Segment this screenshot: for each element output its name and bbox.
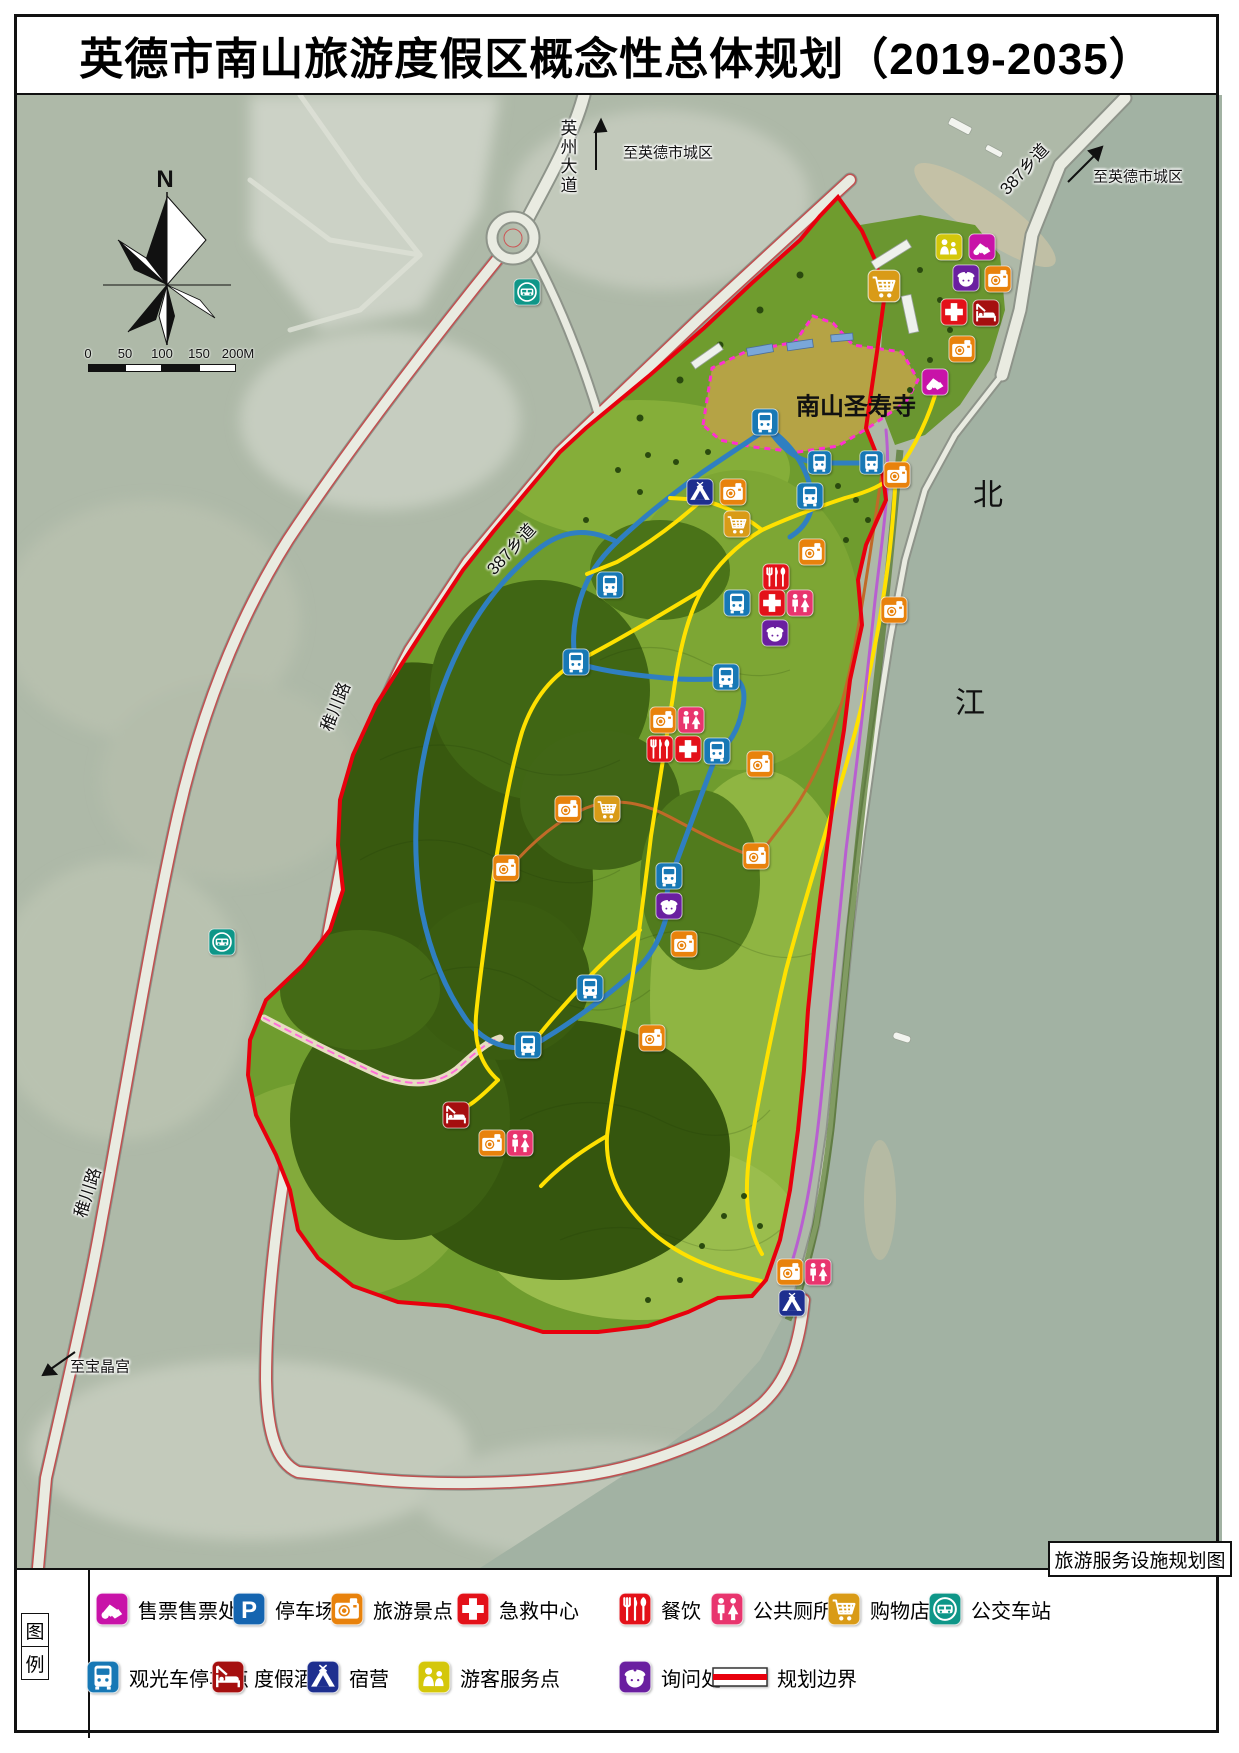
marker-bus-station-icon xyxy=(208,928,236,956)
legend-item-visitor-service: 游客服务点 xyxy=(417,1659,560,1695)
legend-item-attraction: 旅游景点 xyxy=(330,1591,453,1627)
marker-sightseeing-bus-icon xyxy=(703,737,731,765)
marker-attraction-icon xyxy=(478,1129,506,1157)
legend-item-toilet: 公共厕所 xyxy=(710,1591,833,1627)
marker-camping-icon xyxy=(778,1289,806,1317)
title-band: 英德市南山旅游度假区概念性总体规划（2019-2035） xyxy=(17,17,1216,95)
marker-attraction-icon xyxy=(638,1024,666,1052)
scale-segment xyxy=(125,364,162,372)
scale-tick: 150 xyxy=(188,346,210,361)
marker-sightseeing-bus-icon xyxy=(562,648,590,676)
dining-icon xyxy=(618,1592,652,1626)
marker-sightseeing-bus-icon xyxy=(807,450,832,475)
marker-attraction-icon xyxy=(948,335,976,363)
sandbank xyxy=(864,1140,896,1260)
attraction-icon xyxy=(330,1592,364,1626)
marker-shopping-icon xyxy=(593,795,621,823)
map-sheet-title: 旅游服务设施规划图 xyxy=(1048,1541,1232,1577)
legend-label: 宿营 xyxy=(349,1663,389,1692)
legend-item-bus-station: 公交车站 xyxy=(928,1591,1051,1627)
legend-item-boundary: 规划边界 xyxy=(712,1659,857,1695)
legend-label: 公交车站 xyxy=(971,1595,1051,1624)
bus-station-icon xyxy=(928,1592,962,1626)
marker-attraction-icon xyxy=(776,1258,804,1286)
legend-item-first-aid: 急救中心 xyxy=(456,1591,579,1627)
marker-attraction-icon xyxy=(880,596,908,624)
marker-resort-hotel-icon xyxy=(972,299,1000,327)
marker-resort-hotel-icon xyxy=(442,1101,470,1129)
legend-item-information: 询问处 xyxy=(618,1659,721,1695)
marker-attraction-icon xyxy=(492,854,520,882)
marker-sightseeing-bus-icon xyxy=(751,408,779,436)
legend-label: 旅游景点 xyxy=(373,1595,453,1624)
page-title: 英德市南山旅游度假区概念性总体规划（2019-2035） xyxy=(79,23,1153,87)
shopping-icon xyxy=(827,1592,861,1626)
marker-sightseeing-bus-icon xyxy=(859,450,884,475)
legend-label: 规划边界 xyxy=(777,1663,857,1692)
ticket-office-icon xyxy=(95,1592,129,1626)
legend: 图例 售票售票处P停车场旅游景点急救中心餐饮公共厕所购物店公交车站观光车停车点度… xyxy=(17,1568,1222,1736)
marker-sightseeing-bus-icon xyxy=(576,974,604,1002)
roundabout xyxy=(492,217,534,259)
legend-divider xyxy=(88,1570,90,1738)
legend-item-ticket-office: 售票售票处 xyxy=(95,1591,238,1627)
map-label: 南山圣寿寺 xyxy=(796,387,916,422)
marker-dining-icon xyxy=(762,563,790,591)
marker-sightseeing-bus-icon xyxy=(723,589,751,617)
boundary-icon xyxy=(712,1667,768,1687)
marker-sightseeing-bus-icon xyxy=(796,482,824,510)
marker-attraction-icon xyxy=(984,265,1012,293)
marker-first-aid-icon xyxy=(940,298,968,326)
map-label: 英州大道 xyxy=(555,119,580,195)
marker-attraction-icon xyxy=(719,478,747,506)
toilet-icon xyxy=(710,1592,744,1626)
legend-label: 急救中心 xyxy=(499,1595,579,1624)
legend-heading-char: 例 xyxy=(21,1646,49,1680)
map-sheet-title-text: 旅游服务设施规划图 xyxy=(1054,1546,1225,1573)
map-label: 至英德市城区 xyxy=(623,142,713,163)
first-aid-icon xyxy=(456,1592,490,1626)
marker-toilet-icon xyxy=(506,1129,534,1157)
marker-attraction-icon xyxy=(746,750,774,778)
information-icon xyxy=(618,1660,652,1694)
marker-visitor-service-icon xyxy=(935,233,963,261)
marker-ticket-office-icon xyxy=(921,368,949,396)
marker-first-aid-icon xyxy=(674,735,702,763)
map-label: N xyxy=(156,166,173,194)
camping-icon xyxy=(306,1660,340,1694)
marker-attraction-icon xyxy=(670,930,698,958)
legend-label: 公共厕所 xyxy=(753,1595,833,1624)
scale-tick: 0 xyxy=(84,346,91,361)
legend-label: 售票售票处 xyxy=(138,1595,238,1624)
marker-attraction-icon xyxy=(649,706,677,734)
marker-ticket-office-icon xyxy=(968,233,996,261)
marker-sightseeing-bus-icon xyxy=(655,862,683,890)
map-canvas: N英州大道至英德市城区387乡道至英德市城区南山圣寿寺387乡道稚川路北江稚川路… xyxy=(17,95,1222,1568)
scale-tick: 50 xyxy=(118,346,132,361)
resort-hotel-icon xyxy=(211,1660,245,1694)
marker-sightseeing-bus-icon xyxy=(514,1031,542,1059)
marker-shopping-icon xyxy=(723,510,751,538)
svg-text:P: P xyxy=(241,1597,257,1624)
marker-attraction-icon xyxy=(742,842,770,870)
marker-bus-station-icon xyxy=(513,278,541,306)
marker-first-aid-icon xyxy=(758,589,786,617)
satellite-map xyxy=(17,95,1222,1568)
legend-label: 游客服务点 xyxy=(460,1663,560,1692)
marker-information-icon xyxy=(655,892,683,920)
map-label: 江 xyxy=(955,678,985,722)
scale-segment xyxy=(88,364,125,372)
parking-icon: P xyxy=(232,1592,266,1626)
map-label: 至英德市城区 xyxy=(1093,166,1183,187)
legend-heading-char: 图 xyxy=(21,1613,49,1647)
legend-item-dining: 餐饮 xyxy=(618,1591,701,1627)
legend-item-shopping: 购物店 xyxy=(827,1591,930,1627)
marker-information-icon xyxy=(952,264,980,292)
marker-toilet-icon xyxy=(786,589,814,617)
marker-camping-icon xyxy=(686,478,714,506)
marker-shopping-icon xyxy=(867,269,901,303)
legend-label: 购物店 xyxy=(870,1595,930,1624)
marker-toilet-icon xyxy=(677,706,705,734)
scale-tick: 200M xyxy=(222,346,255,361)
legend-label: 停车场 xyxy=(275,1595,335,1624)
scale-tick: 100 xyxy=(151,346,173,361)
marker-attraction-icon xyxy=(883,461,911,489)
map-label: 至宝晶宫 xyxy=(70,1356,130,1377)
map-label: 北 xyxy=(973,470,1003,514)
marker-sightseeing-bus-icon xyxy=(596,571,624,599)
legend-item-parking: P停车场 xyxy=(232,1591,335,1627)
marker-attraction-icon xyxy=(554,795,582,823)
legend-heading: 图例 xyxy=(21,1614,51,1680)
visitor-service-icon xyxy=(417,1660,451,1694)
legend-item-camping: 宿营 xyxy=(306,1659,389,1695)
marker-dining-icon xyxy=(646,735,674,763)
marker-information-icon xyxy=(761,619,789,647)
sightseeing-bus-icon xyxy=(86,1660,120,1694)
marker-toilet-icon xyxy=(804,1258,832,1286)
marker-attraction-icon xyxy=(798,538,826,566)
legend-label: 餐饮 xyxy=(661,1595,701,1624)
marker-sightseeing-bus-icon xyxy=(712,663,740,691)
scale-segment xyxy=(162,364,199,372)
scale-segment xyxy=(199,364,236,372)
